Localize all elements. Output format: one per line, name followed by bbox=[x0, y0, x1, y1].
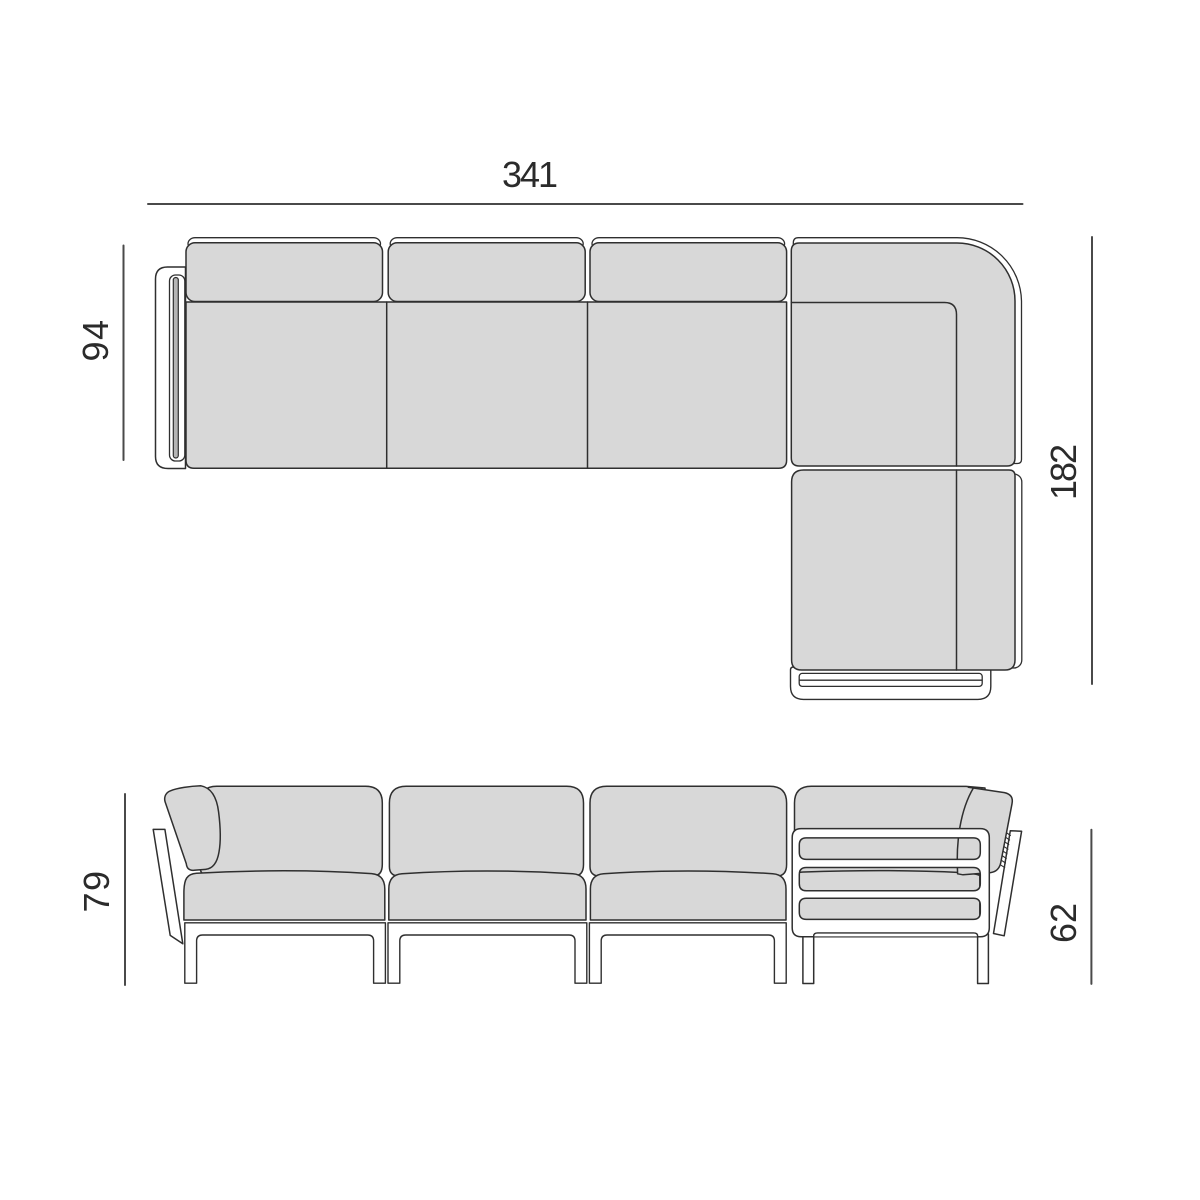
svg-text:62: 62 bbox=[1043, 903, 1084, 943]
svg-text:182: 182 bbox=[1043, 445, 1084, 500]
svg-text:94: 94 bbox=[75, 318, 116, 361]
svg-text:341: 341 bbox=[502, 154, 557, 195]
svg-text:79: 79 bbox=[76, 869, 117, 912]
